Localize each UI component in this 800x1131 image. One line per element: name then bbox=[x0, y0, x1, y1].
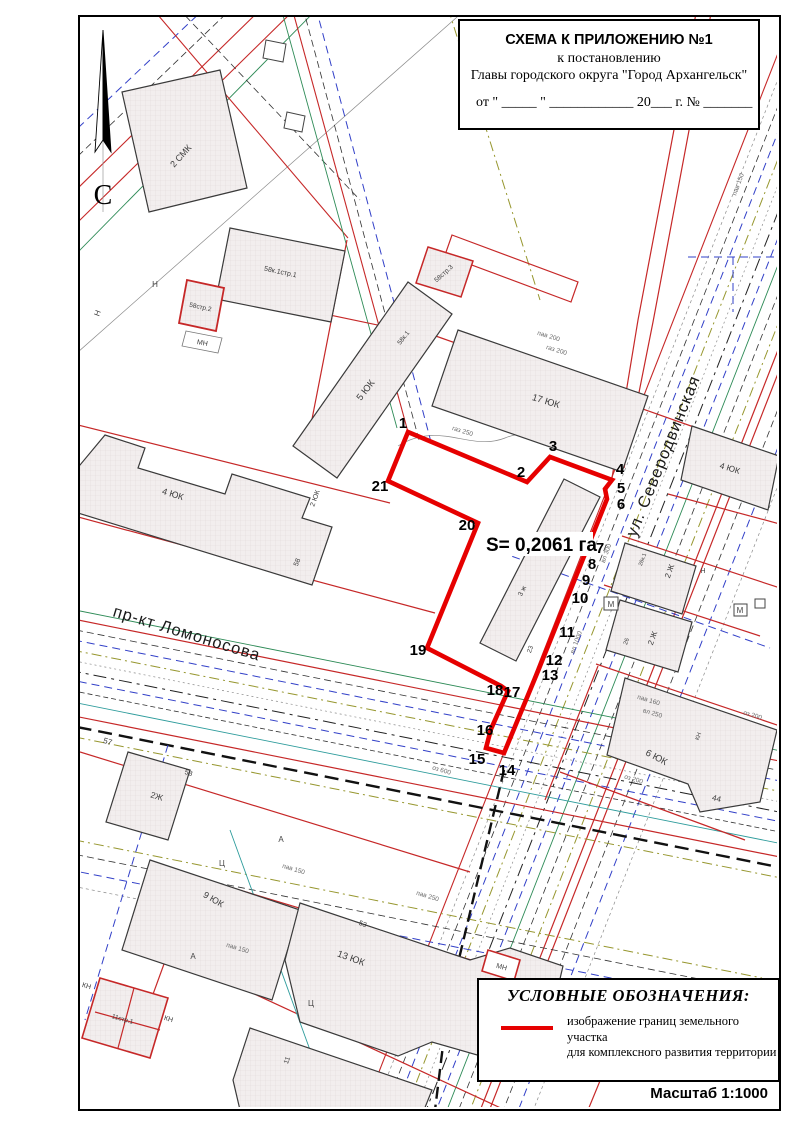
small-shed-a bbox=[263, 40, 286, 62]
m-box-3 bbox=[755, 599, 765, 608]
north-label: С bbox=[94, 180, 113, 211]
legend-item-text-line1: изображение границ земельного участка bbox=[567, 1014, 778, 1045]
label-2yuk: 2 ЮК bbox=[309, 488, 322, 507]
marker-a2: А bbox=[190, 952, 196, 961]
marker-ts1: Ц bbox=[219, 859, 225, 868]
vertex-label-1: 1 bbox=[399, 415, 407, 432]
vertex-label-6: 6 bbox=[617, 496, 625, 513]
scale-label: Масштаб 1:1000 bbox=[560, 1085, 768, 1102]
utility-label: оз 200 bbox=[623, 773, 644, 785]
utility-label: газ 250 bbox=[451, 425, 474, 438]
vertex-label-20: 20 bbox=[459, 517, 476, 534]
building-2zh-c bbox=[106, 752, 190, 840]
small-shed-b bbox=[284, 112, 305, 132]
title-line-3: Главы городского округа "Город Архангель… bbox=[460, 68, 758, 84]
vertex-label-15: 15 bbox=[469, 751, 486, 768]
marker-a1: А bbox=[278, 835, 284, 844]
title-line-1: СХЕМА К ПРИЛОЖЕНИЮ №1 bbox=[460, 32, 758, 48]
marker-m1: М bbox=[608, 600, 615, 609]
vertex-label-13: 13 bbox=[542, 667, 559, 684]
utility-label: газ 200 bbox=[545, 344, 568, 357]
legend-item-text: изображение границ земельного участка дл… bbox=[567, 1014, 778, 1061]
vertex-label-17: 17 bbox=[504, 684, 521, 701]
scheme-page: S= 0,2061 га 1 2 3 4 5 6 7 8 9 10 11 12 … bbox=[0, 0, 800, 1131]
utility-label: пав 150 bbox=[281, 863, 306, 877]
legend-item: изображение границ земельного участка дл… bbox=[479, 1014, 778, 1061]
street-label-lomonosova: пр-кт Ломоносова bbox=[111, 603, 263, 665]
label-57: 57 bbox=[102, 736, 114, 747]
title-date-line: от " _____ " ____________ 20___ г. № ___… bbox=[460, 95, 758, 111]
vertex-label-3: 3 bbox=[549, 438, 557, 455]
vertex-label-19: 19 bbox=[410, 642, 427, 659]
legend-title: УСЛОВНЫЕ ОБОЗНАЧЕНИЯ: bbox=[479, 986, 778, 1006]
map-canvas: S= 0,2061 га 1 2 3 4 5 6 7 8 9 10 11 12 … bbox=[0, 0, 800, 1131]
vertex-label-2: 2 bbox=[517, 464, 525, 481]
vertex-label-16: 16 bbox=[477, 722, 494, 739]
vertex-label-5: 5 bbox=[617, 480, 625, 497]
vertex-label-4: 4 bbox=[616, 461, 625, 478]
vertex-label-18: 18 bbox=[487, 682, 504, 699]
building-2smk bbox=[122, 70, 247, 212]
vertex-label-21: 21 bbox=[372, 478, 389, 495]
marker-m2: М bbox=[737, 606, 744, 615]
legend-box: УСЛОВНЫЕ ОБОЗНАЧЕНИЯ: изображение границ… bbox=[477, 978, 780, 1082]
label-23: 23 bbox=[526, 645, 535, 655]
vertex-label-9: 9 bbox=[582, 572, 590, 589]
building-9yuk bbox=[122, 860, 300, 1000]
utility-label: пав 150 bbox=[731, 172, 746, 197]
marker-kn2: КН bbox=[163, 1015, 174, 1024]
area-label: S= 0,2061 га bbox=[486, 535, 597, 556]
utility-label: пав 250 bbox=[415, 890, 440, 904]
legend-boundary-line-symbol bbox=[501, 1026, 553, 1030]
vertex-label-10: 10 bbox=[572, 590, 589, 607]
marker-n3: Н bbox=[700, 568, 705, 575]
marker-n2: Н bbox=[92, 309, 103, 318]
legend-item-text-line2: для комплексного развития территории bbox=[567, 1045, 778, 1061]
vertex-label-11: 11 bbox=[559, 624, 575, 641]
marker-kn1: КН bbox=[81, 982, 92, 991]
title-line-2: к постановлению bbox=[460, 51, 758, 67]
utility-label: пав 200 bbox=[536, 330, 561, 344]
marker-ts2: Ц bbox=[308, 999, 314, 1008]
marker-n1: Н bbox=[152, 280, 158, 289]
vertex-label-8: 8 bbox=[588, 556, 596, 573]
title-block: СХЕМА К ПРИЛОЖЕНИЮ №1 к постановлению Гл… bbox=[458, 19, 760, 130]
vertex-label-14: 14 bbox=[499, 762, 516, 779]
building-4yuk-left bbox=[70, 435, 332, 585]
